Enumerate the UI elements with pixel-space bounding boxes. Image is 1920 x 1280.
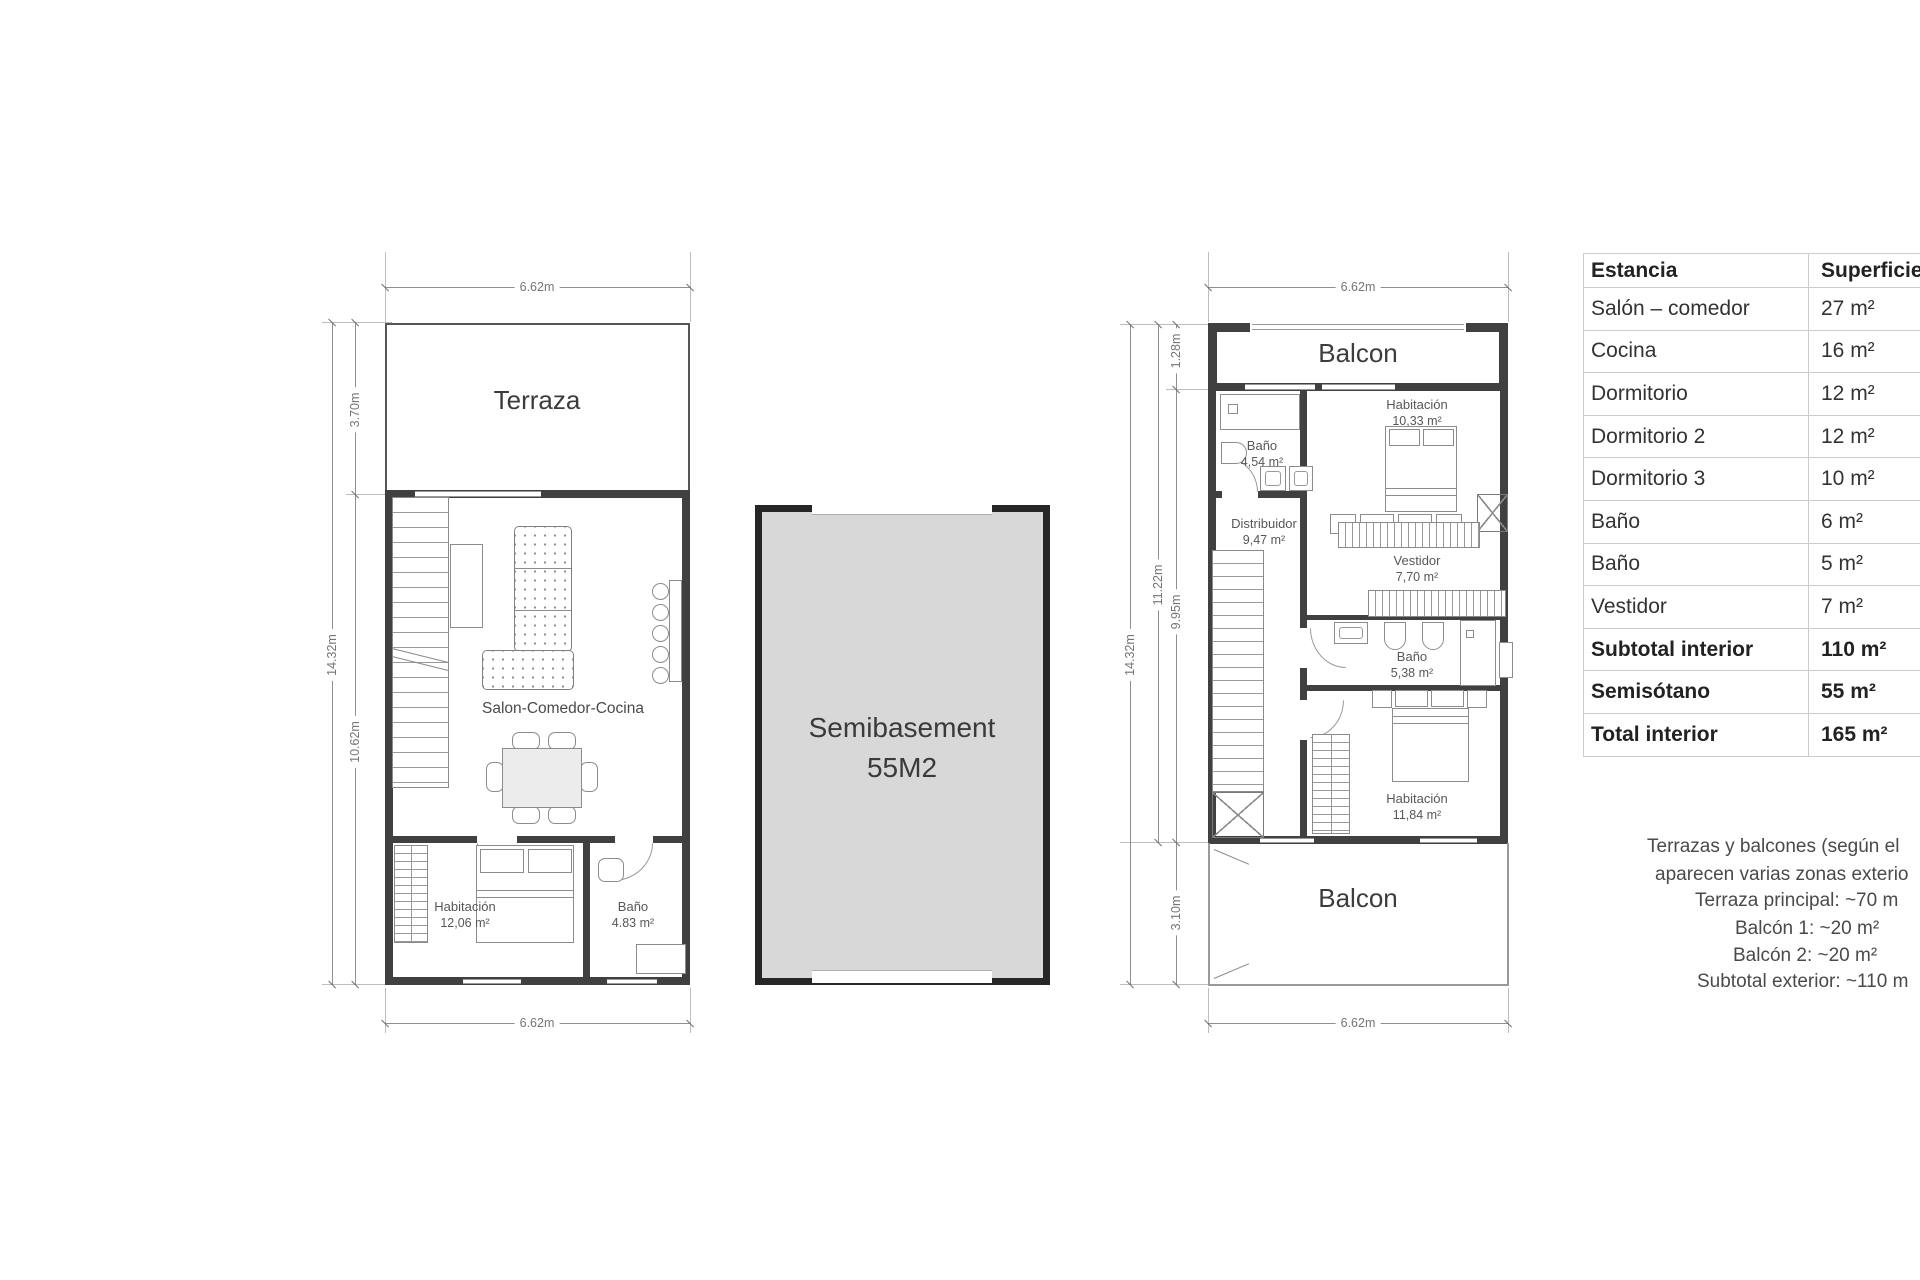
floorplan-sheet: 6.62m 14.32m 3.70m 10.62m 6.62m Terraza	[0, 0, 1920, 1280]
note-line: aparecen varias zonas exterio	[1655, 864, 1908, 886]
note-line: Balcón 1: ~20 m²	[1735, 918, 1879, 940]
note-line: Subtotal exterior: ~110 m	[1697, 971, 1908, 993]
note-line: Terraza principal: ~70 m	[1695, 890, 1898, 912]
note-line: Terrazas y balcones (según el	[1647, 836, 1899, 858]
exterior-note: Terrazas y balcones (según el aparecen v…	[0, 0, 1920, 1280]
note-line: Balcón 2: ~20 m²	[1733, 945, 1877, 967]
